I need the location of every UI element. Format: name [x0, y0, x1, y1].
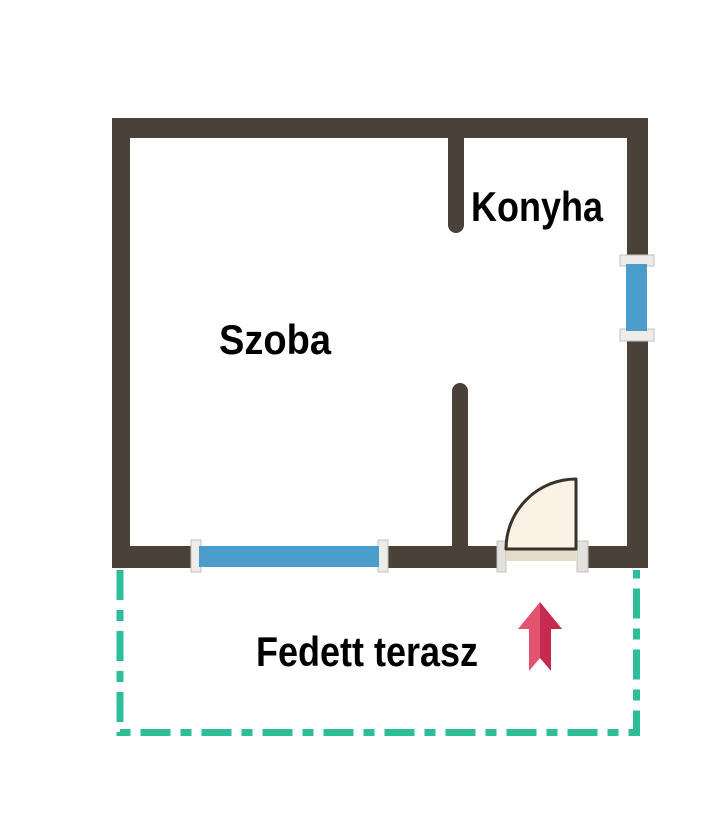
wall-right-upper	[627, 118, 648, 257]
bottom-window-glass	[199, 546, 379, 567]
wall-bottom-middle-segment	[382, 546, 502, 568]
wall-left	[112, 118, 130, 568]
wall-bottom-left-segment	[112, 546, 196, 568]
right-window-glass	[626, 264, 647, 331]
wall-top	[112, 118, 648, 138]
door-swing-arc	[506, 479, 576, 549]
floorplan-canvas: Szoba Konyha Fedett terasz	[0, 0, 720, 820]
wall-right-lower	[627, 341, 648, 568]
door-jamb-right	[577, 541, 588, 572]
terrace-label: Fedett terasz	[256, 628, 478, 675]
entrance-arrow-left-half	[518, 602, 540, 671]
wall-bottom-right-segment	[580, 546, 648, 568]
bottom-window-frame-right	[378, 540, 388, 572]
floorplan-drawing: Szoba Konyha Fedett terasz	[0, 0, 720, 820]
entrance-arrow-right-half	[540, 602, 562, 671]
kitchen-label: Konyha	[471, 183, 604, 230]
entrance-arrow-icon	[518, 602, 562, 671]
door-leaf	[506, 549, 576, 561]
room-label: Szoba	[219, 316, 332, 363]
